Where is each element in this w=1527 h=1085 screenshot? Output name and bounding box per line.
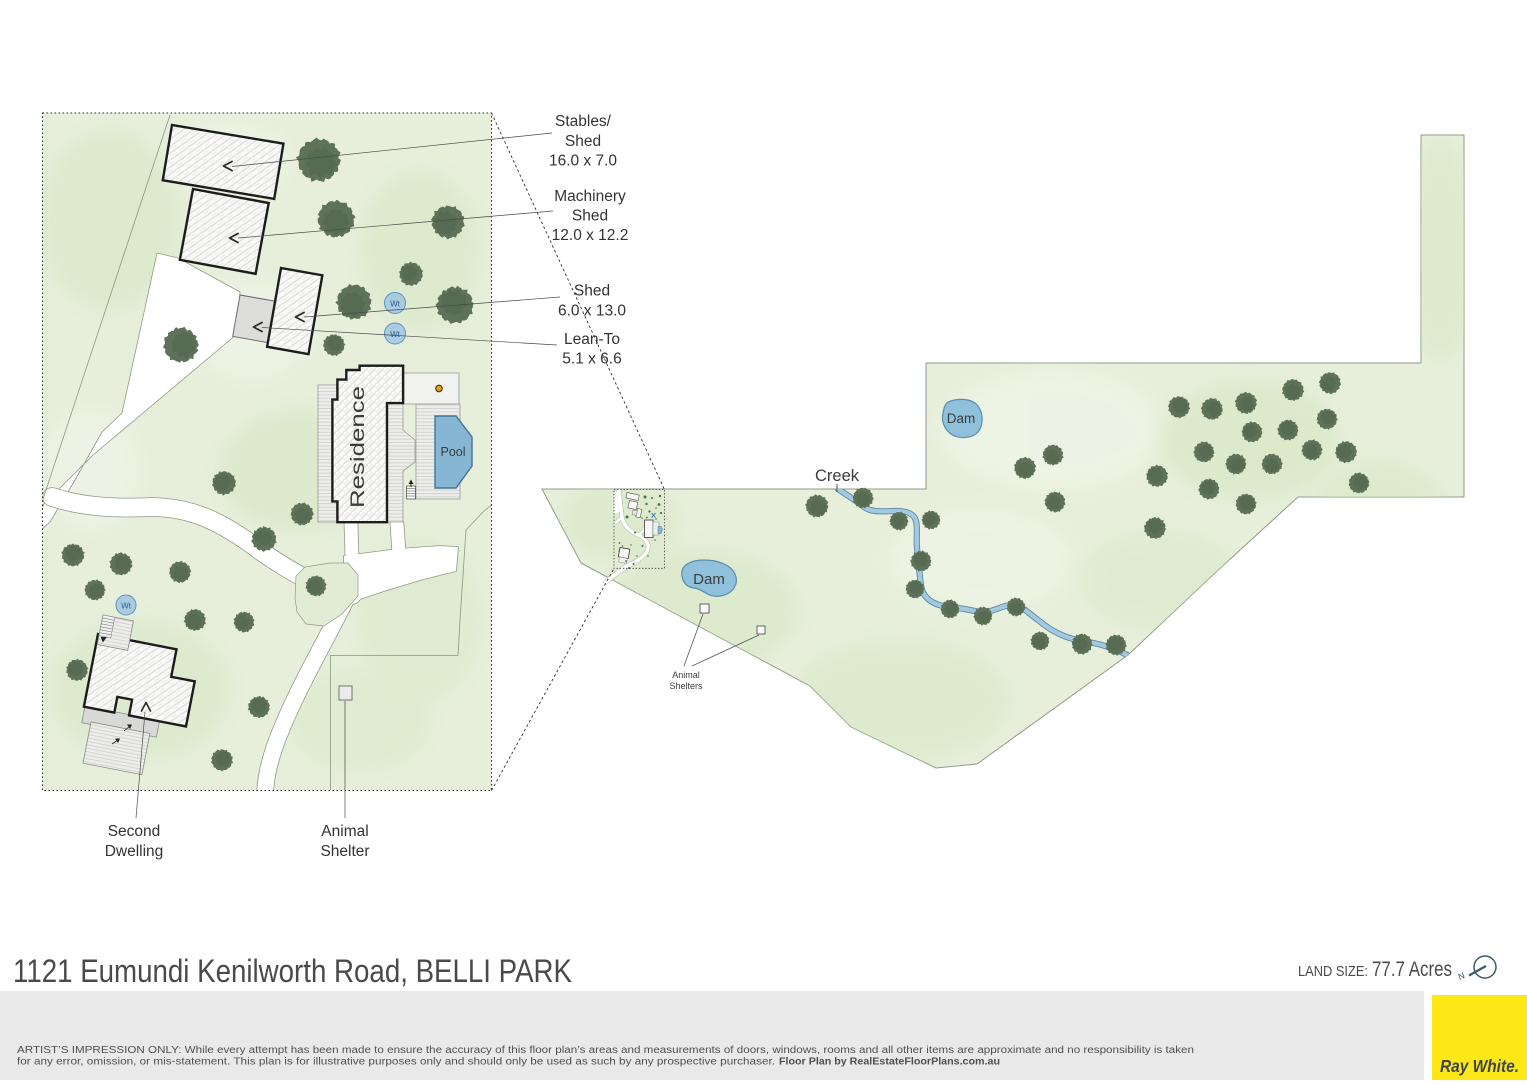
svg-text:ARTIST’S IMPRESSION ONLY: Whil: ARTIST’S IMPRESSION ONLY: While every at… — [17, 1045, 1194, 1056]
svg-text:Machinery: Machinery — [554, 188, 626, 205]
svg-text:Shed: Shed — [574, 283, 610, 300]
svg-text:Animal: Animal — [672, 670, 700, 680]
svg-text:Residence: Residence — [347, 386, 369, 508]
svg-text:Shed: Shed — [565, 133, 601, 150]
svg-text:12.0 x 12.2: 12.0 x 12.2 — [552, 227, 629, 244]
svg-text:Dam: Dam — [947, 411, 976, 426]
svg-text:Wt: Wt — [390, 300, 401, 309]
svg-text:5.1 x 6.6: 5.1 x 6.6 — [562, 351, 621, 368]
svg-text:16.0 x 7.0: 16.0 x 7.0 — [549, 153, 617, 170]
svg-text:Creek: Creek — [815, 467, 860, 485]
svg-text:Wt: Wt — [390, 330, 401, 339]
svg-text:Shelters: Shelters — [669, 681, 703, 691]
svg-text:Animal: Animal — [321, 823, 368, 840]
svg-text:6.0 x 13.0: 6.0 x 13.0 — [558, 303, 626, 320]
svg-text:Second: Second — [108, 823, 161, 840]
svg-text:for any error, omission, or mi: for any error, omission, or mis-statemen… — [17, 1057, 775, 1068]
svg-text:Stables/: Stables/ — [555, 113, 612, 130]
svg-text:LAND SIZE:: LAND SIZE: — [1298, 964, 1368, 980]
svg-text:1121 Eumundi Kenilworth Road,: 1121 Eumundi Kenilworth Road, BELLI PARK — [13, 953, 572, 989]
svg-text:Ray White.: Ray White. — [1440, 1056, 1519, 1076]
svg-text:Wt: Wt — [121, 602, 132, 611]
svg-text:77.7 Acres: 77.7 Acres — [1372, 958, 1452, 981]
svg-text:Pool: Pool — [440, 445, 465, 459]
svg-text:Shelter: Shelter — [320, 843, 369, 860]
svg-text:Dwelling: Dwelling — [105, 843, 164, 860]
svg-text:Shed: Shed — [572, 208, 608, 225]
svg-text:Floor Plan by RealEstateFloorP: Floor Plan by RealEstateFloorPlans.com.a… — [779, 1057, 1000, 1068]
svg-text:Lean-To: Lean-To — [564, 331, 620, 348]
svg-text:Dam: Dam — [693, 571, 725, 588]
